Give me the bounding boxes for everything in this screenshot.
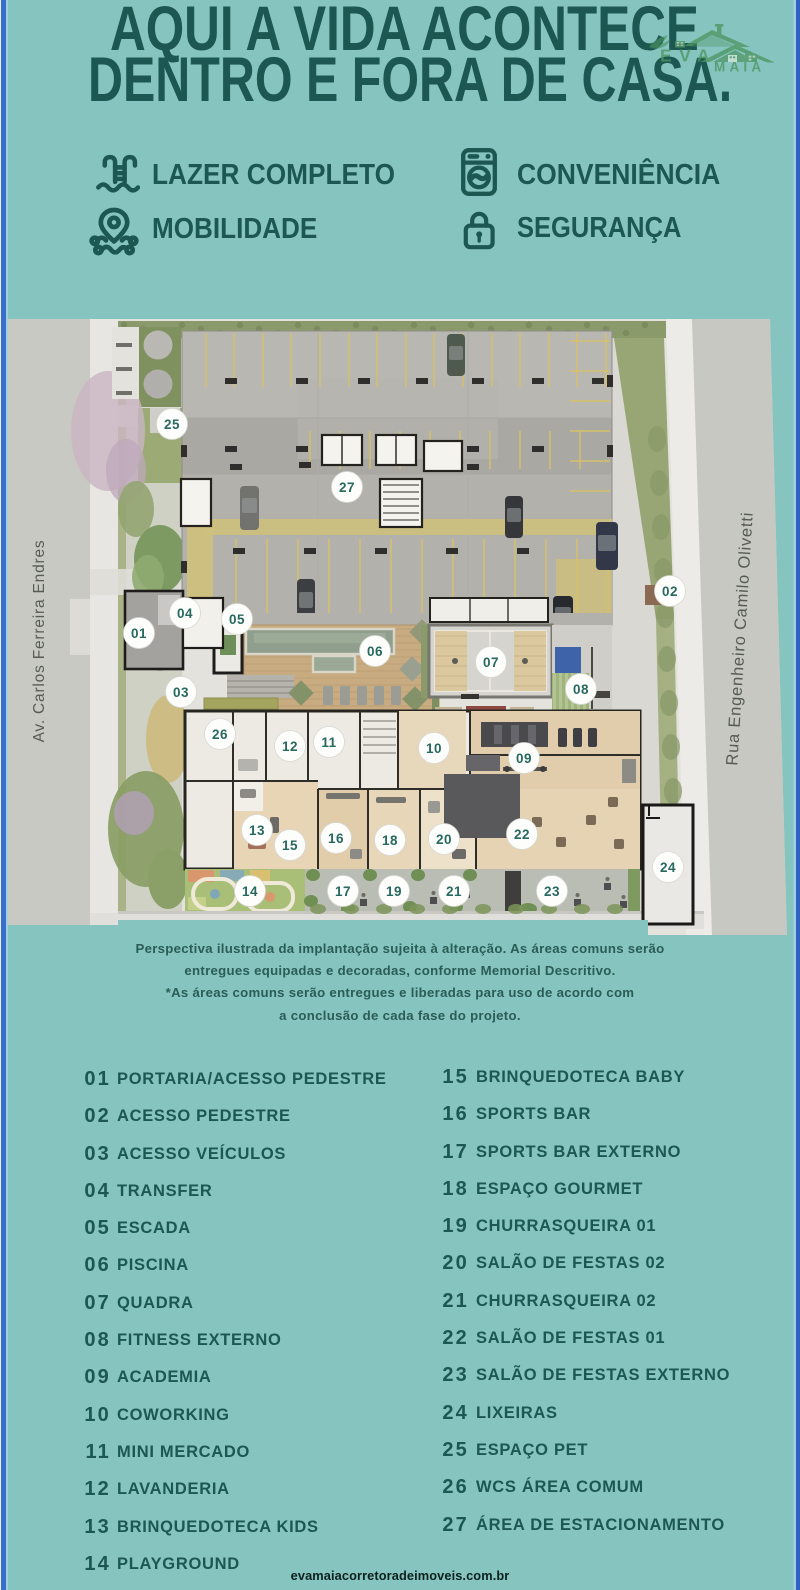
svg-text:10: 10 bbox=[426, 741, 442, 756]
svg-text:14: 14 bbox=[242, 884, 258, 899]
svg-text:18: 18 bbox=[382, 833, 398, 848]
svg-text:02: 02 bbox=[662, 584, 678, 599]
svg-text:20: 20 bbox=[436, 832, 452, 847]
svg-text:25: 25 bbox=[164, 417, 180, 432]
svg-text:22: 22 bbox=[514, 827, 530, 842]
svg-text:Av. Carlos Ferreira Endres: Av. Carlos Ferreira Endres bbox=[31, 540, 48, 743]
svg-text:04: 04 bbox=[177, 606, 193, 621]
svg-text:08: 08 bbox=[573, 682, 589, 697]
svg-text:19: 19 bbox=[386, 884, 402, 899]
svg-text:13: 13 bbox=[249, 823, 265, 838]
svg-text:23: 23 bbox=[544, 884, 560, 899]
svg-text:17: 17 bbox=[335, 884, 351, 899]
svg-text:21: 21 bbox=[446, 884, 462, 899]
svg-text:16: 16 bbox=[328, 831, 344, 846]
svg-text:24: 24 bbox=[660, 860, 676, 875]
svg-text:15: 15 bbox=[282, 838, 298, 853]
svg-text:11: 11 bbox=[321, 735, 336, 750]
svg-text:EVA: EVA bbox=[660, 46, 717, 66]
svg-text:03: 03 bbox=[173, 685, 189, 700]
svg-text:01: 01 bbox=[131, 626, 147, 641]
svg-text:07: 07 bbox=[483, 655, 499, 670]
svg-text:06: 06 bbox=[367, 644, 383, 659]
svg-text:09: 09 bbox=[516, 751, 532, 766]
svg-text:27: 27 bbox=[339, 480, 355, 495]
svg-text:12: 12 bbox=[282, 739, 298, 754]
svg-text:MAIA: MAIA bbox=[714, 60, 765, 75]
svg-text:26: 26 bbox=[212, 727, 228, 742]
svg-text:05: 05 bbox=[229, 612, 245, 627]
